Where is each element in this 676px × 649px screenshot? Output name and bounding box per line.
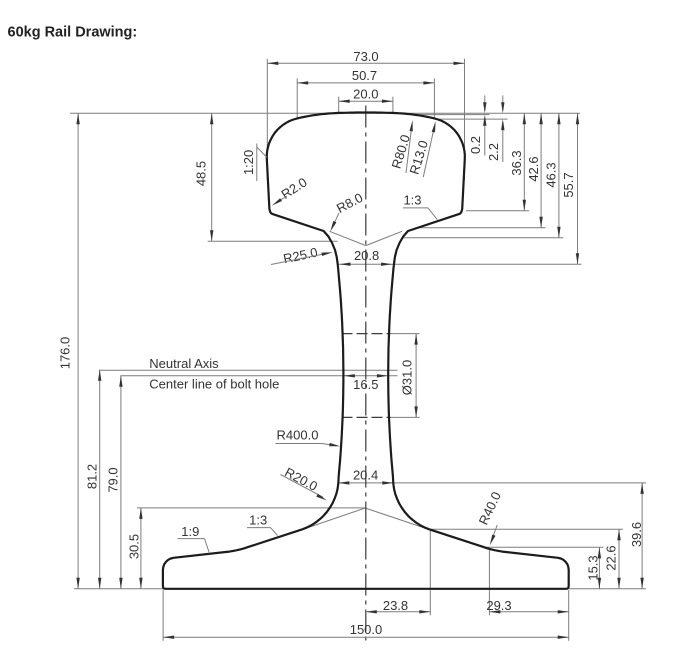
svg-text:Neutral Axis: Neutral Axis [149,356,219,371]
svg-text:81.2: 81.2 [85,464,100,489]
svg-text:79.0: 79.0 [106,467,121,492]
svg-text:20.0: 20.0 [353,87,378,102]
svg-text:150.0: 150.0 [350,622,383,637]
svg-text:73.0: 73.0 [353,49,378,64]
svg-text:29.3: 29.3 [486,598,511,613]
svg-text:Center line of bolt hole: Center line of bolt hole [149,377,279,392]
svg-text:48.5: 48.5 [194,161,209,186]
svg-text:2.2: 2.2 [486,143,501,161]
svg-text:23.8: 23.8 [383,598,408,613]
svg-text:0.2: 0.2 [468,136,483,154]
svg-text:50.7: 50.7 [352,68,377,83]
svg-text:22.6: 22.6 [604,545,619,570]
svg-text:1:9: 1:9 [181,524,199,539]
svg-text:1:20: 1:20 [241,150,256,175]
svg-text:Ø31.0: Ø31.0 [400,360,415,395]
svg-text:R400.0: R400.0 [277,428,319,443]
svg-text:20.8: 20.8 [354,248,379,263]
svg-text:60kg Rail Drawing:: 60kg Rail Drawing: [8,25,138,41]
svg-text:39.6: 39.6 [629,522,644,547]
svg-text:1:3: 1:3 [249,513,267,528]
svg-text:36.3: 36.3 [509,150,524,175]
svg-text:1:3: 1:3 [403,193,421,208]
svg-text:55.7: 55.7 [561,172,576,197]
svg-text:16.5: 16.5 [353,377,378,392]
svg-text:42.6: 42.6 [526,156,541,181]
svg-text:176.0: 176.0 [57,337,72,370]
svg-text:20.4: 20.4 [353,467,378,482]
svg-text:46.3: 46.3 [544,162,559,187]
svg-text:30.5: 30.5 [127,534,142,559]
svg-text:15.3: 15.3 [585,555,600,580]
